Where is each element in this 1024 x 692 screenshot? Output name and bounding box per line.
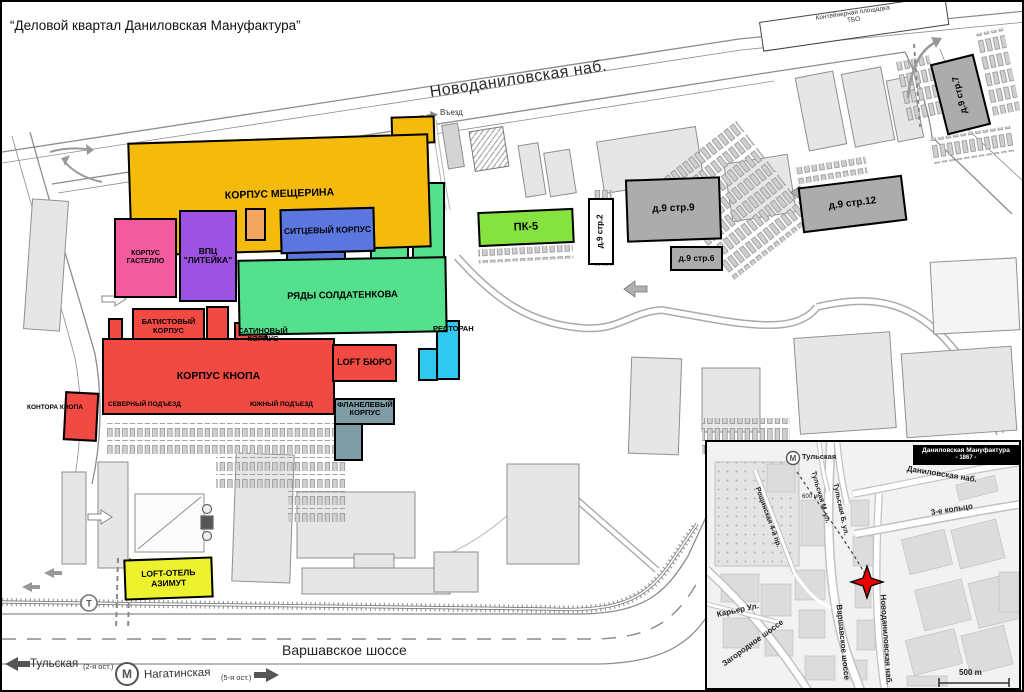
stop-tulskaya-label: Тульская — [30, 658, 78, 670]
building-d9s9: д.9 стр.9 — [625, 176, 722, 242]
building-label: LOFT БЮРО — [337, 358, 392, 368]
stop-nagatinskaya-label: Нагатинская — [144, 667, 211, 681]
inset-metro-station-label: Тульская — [802, 452, 836, 461]
building-label: ПК-5 — [514, 221, 539, 234]
inset-title-line1: Даниловская Мануфактура — [913, 447, 1019, 455]
building-label: ВПЦ "ЛИТЕЙКА" — [183, 247, 233, 265]
building-kontora-knopa-label: КОНТОРА КНОПА — [27, 404, 83, 411]
inset-title-box: Даниловская Мануфактура - 1867 - — [913, 445, 1019, 465]
building-label: д.9 стр.7 — [951, 75, 970, 114]
metro-letter: М — [122, 667, 132, 681]
gate-ornament-icon — [201, 505, 213, 541]
building-label: д.9 стр.2 — [597, 215, 606, 249]
inset-scale-label: 500 m — [959, 668, 982, 677]
building-satinovy-label: САТИНОВЫЙ КОРПУС — [231, 327, 295, 344]
building-label: КОРПУС ГАСТЕЛЛО — [118, 250, 173, 265]
metro-icon: М — [115, 662, 139, 686]
building-soldatenkova: РЯДЫ СОЛДАТЕНКОВА — [237, 256, 447, 336]
knopa-north-entrance-label: СЕВЕРНЫЙ ПОДЪЕЗД — [108, 401, 181, 408]
building-label: СИТЦЕВЫЙ КОРПУС — [284, 225, 371, 236]
building-flanelevy-wing — [334, 423, 363, 461]
building-label: РЯДЫ СОЛДАТЕНКОВА — [287, 290, 398, 302]
building-kontora-knopa — [63, 391, 100, 442]
building-gastello: КОРПУС ГАСТЕЛЛО — [114, 218, 177, 298]
building-restoran-foot — [418, 348, 438, 381]
building-label: д.9 стр.9 — [652, 203, 695, 215]
knopa-south-entrance-label: ЮЖНЫЙ ПОДЪЕЗД — [250, 401, 313, 408]
building-pk5: ПК-5 — [477, 208, 574, 247]
building-label: д.9 стр.6 — [678, 254, 714, 263]
building-label: БАТИСТОВЫЙ КОРПУС — [135, 318, 202, 334]
building-sitsevy: СИТЦЕВЫЙ КОРПУС — [279, 207, 375, 254]
building-label: КОРПУС КНОПА — [177, 371, 260, 382]
building-restoran-label: РЕСТОРАН — [433, 324, 474, 333]
annex-building — [245, 208, 266, 241]
building-liteyka: ВПЦ "ЛИТЕЙКА" — [179, 210, 237, 302]
entry-label: Въезд — [440, 108, 463, 117]
building-loft-buro: LOFT БЮРО — [332, 344, 397, 382]
inset-metro-letter: М — [790, 454, 797, 463]
building-label: д.9 стр.12 — [828, 196, 877, 213]
building-label: LOFT-ОТЕЛЬ АЗИМУТ — [128, 568, 210, 589]
stop-tulskaya-note: (2-я ост.) — [83, 662, 113, 671]
page-title: “Деловой квартал Даниловская Мануфактура… — [10, 18, 301, 33]
building-d9s6: д.9 стр.6 — [670, 246, 723, 271]
building-azimut: LOFT-ОТЕЛЬ АЗИМУТ — [123, 556, 213, 600]
building-flanelevy-label: ФЛАНЕЛЕВЫЙ КОРПУС — [335, 401, 395, 418]
street-highway-label: Варшавское шоссе — [279, 642, 410, 658]
building-label: КОРПУС МЕЩЕРИНА — [225, 188, 335, 203]
tram-stop-icon: Т — [86, 599, 92, 609]
stop-nagatinskaya-note: (5-я ост.) — [221, 673, 251, 682]
inset-city-map: М Даниловская Мануфактура - 1867 - Тульс… — [705, 440, 1021, 690]
inset-title-line2: - 1867 - — [913, 455, 1019, 463]
site-plan-map: Т — [0, 0, 1024, 692]
building-d9s2: д.9 стр.2 — [588, 198, 614, 265]
